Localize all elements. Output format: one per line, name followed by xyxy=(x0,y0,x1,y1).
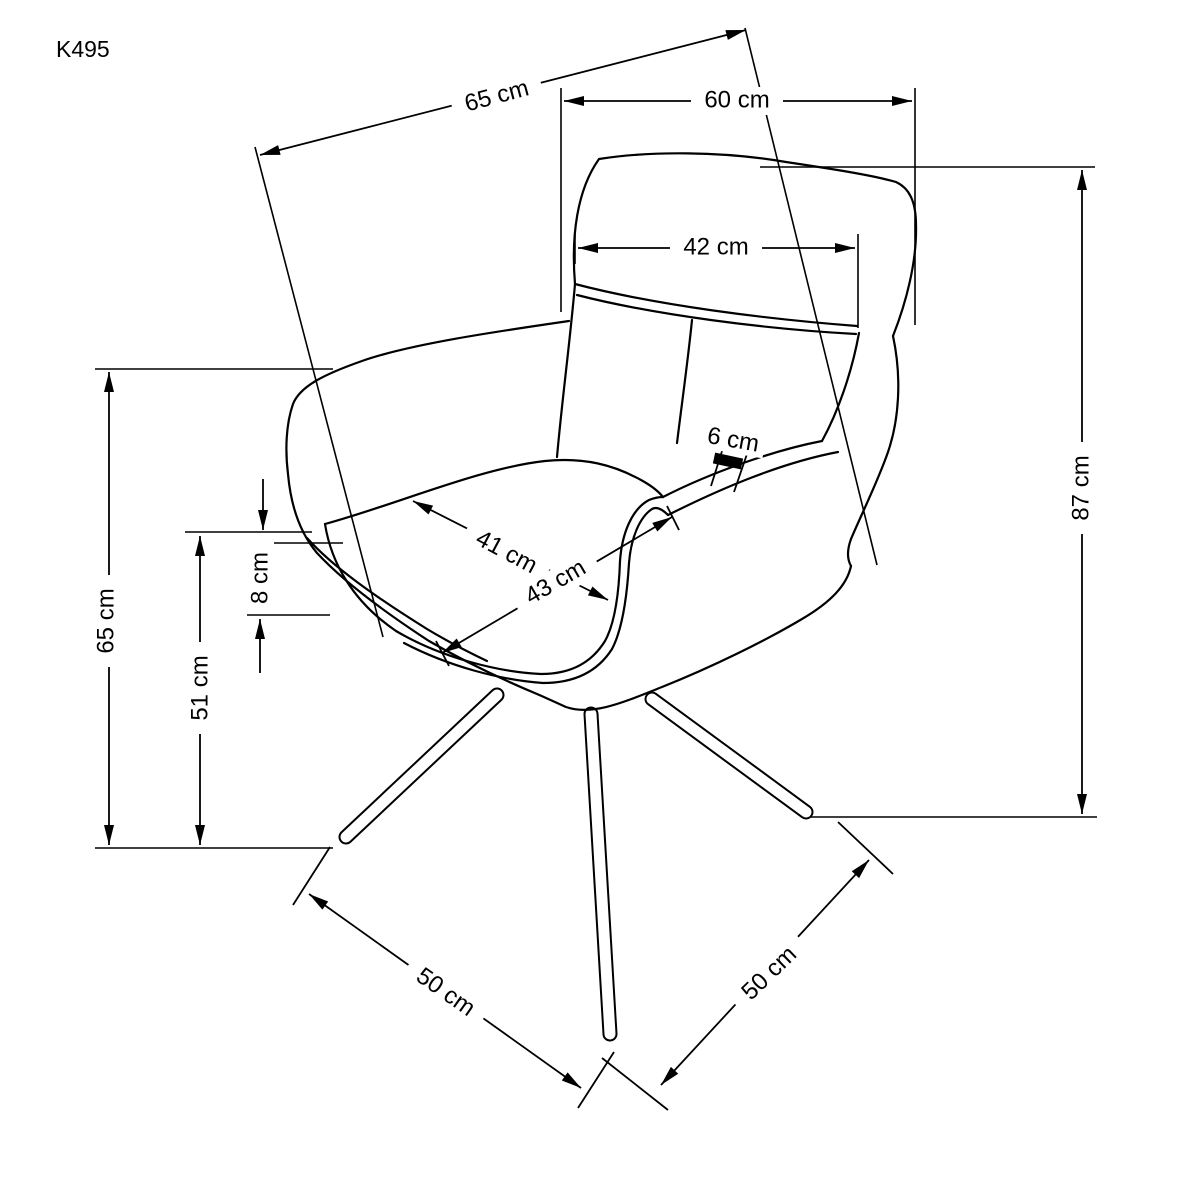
label-backrest-width: 42 cm xyxy=(670,233,762,262)
label-seat-height: 51 cm xyxy=(186,642,215,734)
label-total-depth: 65 cm xyxy=(449,71,545,122)
dim-label-leg-span-right: 50 cm xyxy=(736,941,802,1006)
backrest-seam-lower xyxy=(577,295,856,334)
label-seat-side-height: 8 cm xyxy=(246,542,274,614)
label-cushion-edge: 6 cm xyxy=(699,421,767,459)
wing-outer-edge xyxy=(848,336,898,566)
tick-leg-right-low xyxy=(602,1058,668,1110)
model-label: K495 xyxy=(56,36,110,62)
label-leg-span-right: 50 cm xyxy=(727,932,813,1017)
label-total-height: 87 cm xyxy=(1067,442,1096,534)
backrest-left-edge xyxy=(557,284,575,457)
dimension-labels: K495 65 cm 60 cm 42 cm 87 cm 65 cm 51 cm xyxy=(56,36,1096,1031)
backrest-center-seam xyxy=(677,320,692,443)
label-armrest-height: 65 cm xyxy=(92,575,121,667)
dim-label-seat-depth: 41 cm xyxy=(471,525,541,580)
chair-technical-drawing: K495 65 cm 60 cm 42 cm 87 cm 65 cm 51 cm xyxy=(0,0,1200,1200)
dim-label-armrest-height: 65 cm xyxy=(92,588,119,653)
dim-label-seat-height: 51 cm xyxy=(186,655,213,720)
dim-label-total-width: 60 cm xyxy=(704,86,769,113)
technical-drawing-page: K495 65 cm 60 cm 42 cm 87 cm 65 cm 51 cm xyxy=(0,0,1200,1200)
tick-leg-right-high xyxy=(838,822,893,874)
label-total-width: 60 cm xyxy=(691,86,783,115)
wing-inner-edge xyxy=(822,333,859,441)
seat-back-edge xyxy=(325,460,663,524)
tick-leg-left-bottom xyxy=(578,1052,614,1108)
label-leg-span-left: 50 cm xyxy=(399,955,491,1031)
shell-outer-edge xyxy=(286,321,851,710)
dim-label-backrest-width: 42 cm xyxy=(683,233,748,260)
ext-depth-left xyxy=(255,147,383,637)
dim-label-cushion-edge: 6 cm xyxy=(705,422,761,458)
dim-label-total-height: 87 cm xyxy=(1067,455,1094,520)
dim-label-seat-side-height: 8 cm xyxy=(246,552,273,604)
